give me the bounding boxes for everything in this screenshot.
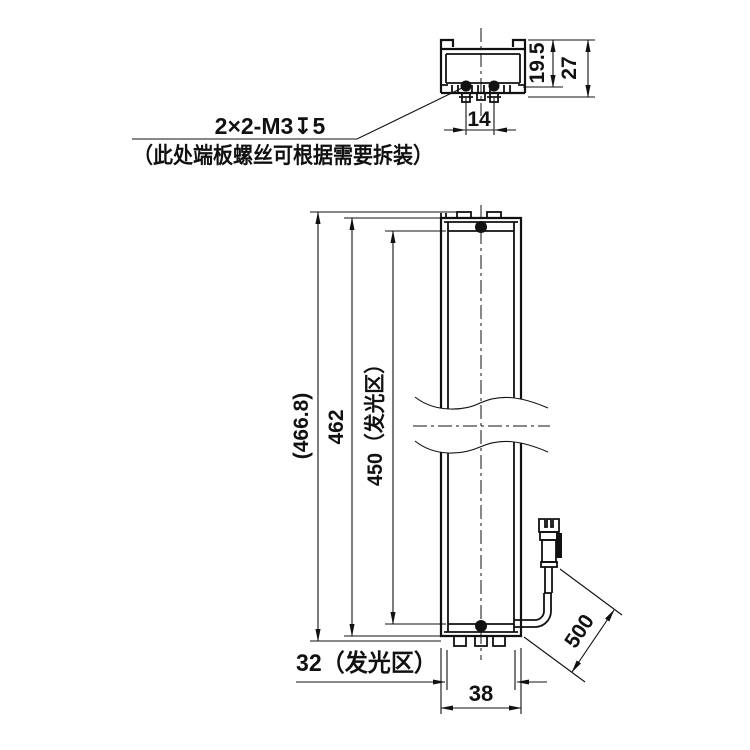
dim-text-body-length: 462 [325, 409, 348, 444]
front-screw-top [475, 221, 487, 233]
front-top-tab-left [457, 212, 471, 218]
dim-text-total-height: 27 [558, 56, 581, 79]
dim-text-glow-length: 450（发光区） [363, 354, 387, 486]
connector-latch [556, 533, 562, 558]
section-view: 19.5 27 14 2×2-M3↧5 （此处端板螺丝可根据需要拆装） [132, 28, 595, 168]
dim-text-cable-length: 500 [560, 610, 599, 652]
connector-flange [540, 532, 558, 540]
section-right-nub [513, 40, 525, 49]
cable-bend-inner [514, 611, 544, 620]
dim-text-screw-spacing: 14 [467, 108, 491, 131]
front-bottom-tab-right [493, 636, 505, 646]
connector-barrel [542, 540, 556, 562]
front-screw-bottom [475, 620, 487, 632]
section-left-nub [441, 40, 453, 49]
cable-straight [544, 567, 552, 611]
dim-text-overall-length: (466.8) [290, 393, 313, 460]
dim-text-body-width: 38 [469, 681, 493, 706]
connector-ring [541, 562, 557, 567]
note-endplate-screws: （此处端板螺丝可根据需要拆装） [133, 143, 433, 168]
front-bottom-tab-left [454, 636, 466, 646]
screw-head-left [461, 81, 472, 92]
mechanical-drawing: 19.5 27 14 2×2-M3↧5 （此处端板螺丝可根据需要拆装） [0, 0, 750, 750]
cable-assembly: 500 [514, 519, 622, 682]
dim-text-glow-width: 32（发光区） [296, 649, 437, 677]
ext-cable-connector-end [560, 569, 622, 615]
cable-bend-outer [514, 611, 551, 627]
connector-crown [539, 519, 559, 532]
technical-drawing-page: 19.5 27 14 2×2-M3↧5 （此处端板螺丝可根据需要拆装） [0, 0, 750, 750]
front-top-tab-right [487, 212, 501, 218]
note-thread-spec: 2×2-M3↧5 [215, 113, 326, 139]
screw-head-right [489, 81, 500, 92]
front-view: (466.8) 462 450（发光区） 32（发光区） 38 [290, 205, 550, 714]
dim-text-slot-depth: 19.5 [526, 42, 549, 83]
